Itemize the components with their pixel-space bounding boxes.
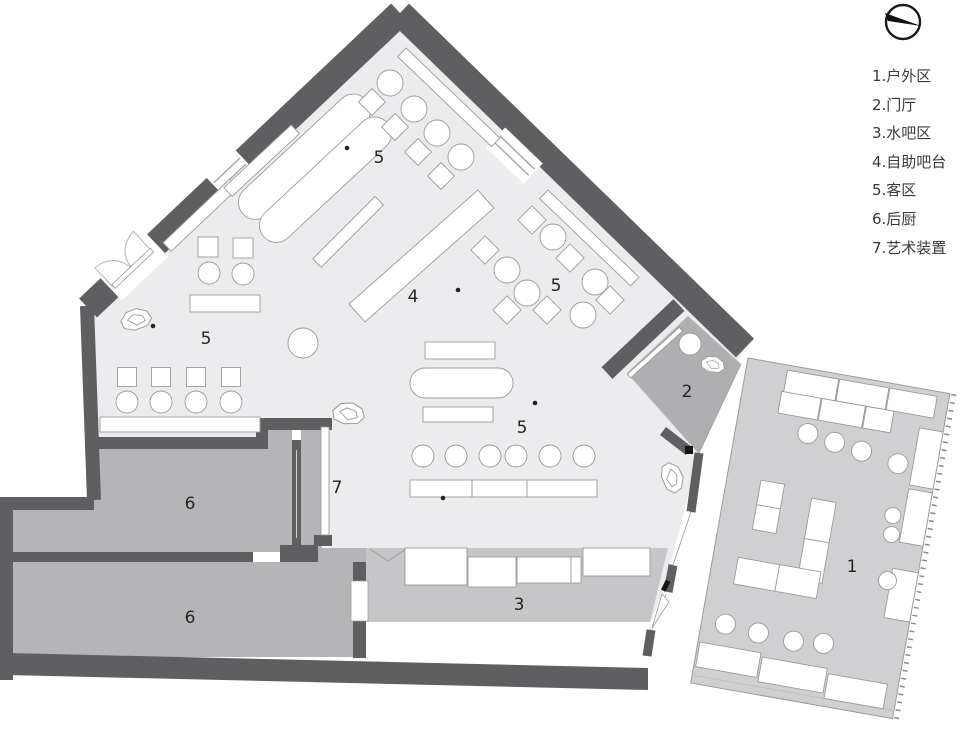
legend-item-entrance: 2.门厅 (872, 91, 946, 120)
zone-label-guest-center: 5 (517, 418, 528, 438)
bottom-corridor (366, 622, 650, 658)
zone-label-entrance: 2 (682, 382, 693, 402)
art-installation-wall (321, 427, 329, 535)
legend: 1.户外区 2.门厅 3.水吧区 4.自助吧台 5.客区 6.后厨 7.艺术装置 (872, 62, 946, 262)
north-arrow-icon (885, 5, 921, 39)
door-hinge-block (685, 446, 693, 454)
zone-label-guest-top: 5 (374, 148, 385, 168)
floor-plan-drawing: 5 5 5 5 4 2 7 6 6 3 1 (0, 0, 960, 734)
corridor-floor (301, 430, 322, 550)
zone-label-kitchen-lower: 6 (185, 608, 196, 628)
floor-plan-page: 5 5 5 5 4 2 7 6 6 3 1 1.户外区 2.门厅 3.水吧区 4… (0, 0, 960, 734)
zone-label-buffet-bar: 4 (408, 287, 419, 307)
legend-item-kitchen: 6.后厨 (872, 205, 946, 234)
kitchen-door-gap (351, 581, 368, 621)
legend-item-guest-area: 5.客区 (872, 176, 946, 205)
legend-item-water-bar: 3.水吧区 (872, 119, 946, 148)
zone-label-outdoor: 1 (847, 557, 858, 577)
zone-label-guest-right: 5 (551, 276, 562, 296)
zone-label-kitchen-upper: 6 (185, 494, 196, 514)
zone-label-art: 7 (332, 478, 343, 498)
zone-label-water-bar: 3 (514, 595, 525, 615)
legend-item-outdoor: 1.户外区 (872, 62, 946, 91)
legend-item-art: 7.艺术装置 (872, 234, 946, 263)
legend-item-buffet-bar: 4.自助吧台 (872, 148, 946, 177)
outdoor-area (691, 358, 954, 719)
zone-label-guest-left: 5 (201, 329, 212, 349)
